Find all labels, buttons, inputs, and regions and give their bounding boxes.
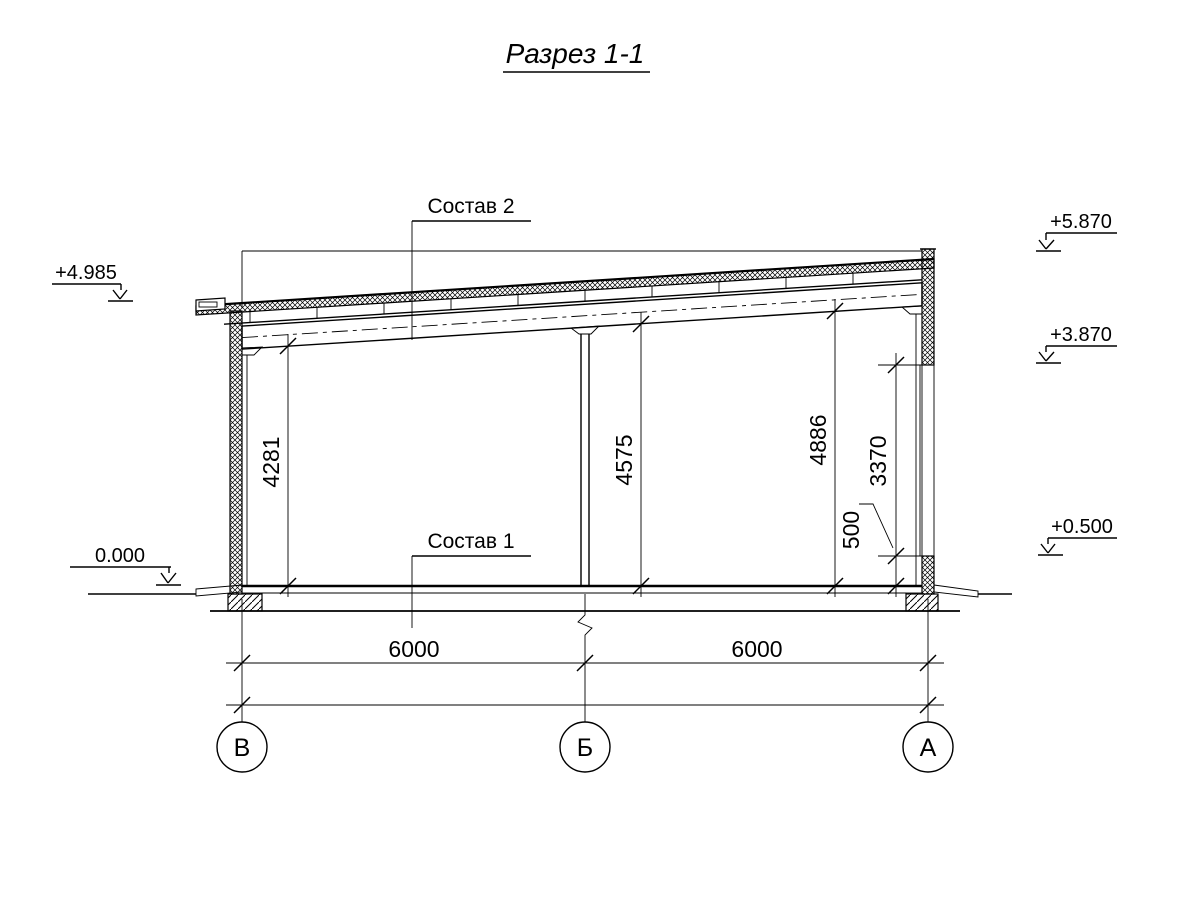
elevation-ground-zero: 0.000	[70, 545, 181, 585]
left-wall	[230, 311, 242, 594]
elevation-parapet-top: +5.870	[1036, 211, 1117, 251]
elevation-left-wall-top: +4.985	[52, 262, 133, 301]
roof-composition-callout: Состав 2	[427, 195, 514, 218]
dimension-clear-height-middle-value: 4575	[611, 434, 637, 485]
plinth-dimension-leader	[859, 504, 893, 548]
dimension-clear-height-right: 4886	[805, 299, 843, 597]
axis-label-a: А	[920, 734, 937, 762]
right-apron	[934, 585, 978, 597]
right-parapet-panel	[922, 249, 934, 365]
elevation-left-wall-top-value: +4.985	[55, 262, 117, 284]
axis-markers: В Б А	[217, 594, 953, 772]
dimension-clear-height-middle: 4575	[611, 312, 649, 597]
elevation-plinth-top: +0.500	[1038, 516, 1117, 555]
right-beam-bracket	[902, 306, 922, 314]
dimension-window-height: 3370	[865, 353, 904, 597]
elevation-ground-zero-value: 0.000	[95, 545, 145, 567]
floor	[88, 585, 1012, 611]
right-foundation	[906, 594, 938, 611]
axis-label-v: В	[234, 734, 251, 762]
elevation-plinth-top-value: +0.500	[1051, 516, 1113, 538]
roof-fascia-detail	[196, 298, 225, 311]
axis-label-b: Б	[577, 734, 593, 762]
dimension-clear-height-right-value: 4886	[805, 414, 831, 465]
dimension-window-height-value: 3370	[865, 435, 891, 486]
callouts: Состав 2 Состав 1	[412, 195, 531, 628]
roof-insulation-band	[196, 259, 934, 315]
dimension-plinth-height: 500	[838, 504, 893, 549]
elevation-window-head: +3.870	[1036, 324, 1117, 363]
section-drawing: Разрез 1-1	[0, 0, 1200, 900]
floor-slab-band	[262, 593, 906, 611]
dimension-bay-left-value: 6000	[388, 636, 439, 662]
dimension-plinth-height-value: 500	[838, 511, 864, 549]
right-plinth-panel	[922, 556, 934, 594]
left-foundation	[228, 594, 262, 611]
elevation-window-head-value: +3.870	[1050, 324, 1112, 346]
elevation-parapet-top-value: +5.870	[1050, 211, 1112, 233]
floor-composition-callout: Состав 1	[427, 530, 514, 553]
dimension-clear-height-left-value: 4281	[258, 436, 284, 487]
dimension-bay-right-value: 6000	[731, 636, 782, 662]
drawing-sheet: Разрез 1-1	[0, 0, 1200, 900]
roof-top-edge	[196, 259, 934, 306]
roof	[196, 259, 934, 349]
elevation-marks: +4.985 0.000 +5.870 +3.870	[52, 211, 1117, 585]
drawing-title: Разрез 1-1	[506, 38, 645, 69]
title-block: Разрез 1-1	[503, 38, 650, 72]
dimension-clear-height-left: 4281	[258, 334, 296, 597]
